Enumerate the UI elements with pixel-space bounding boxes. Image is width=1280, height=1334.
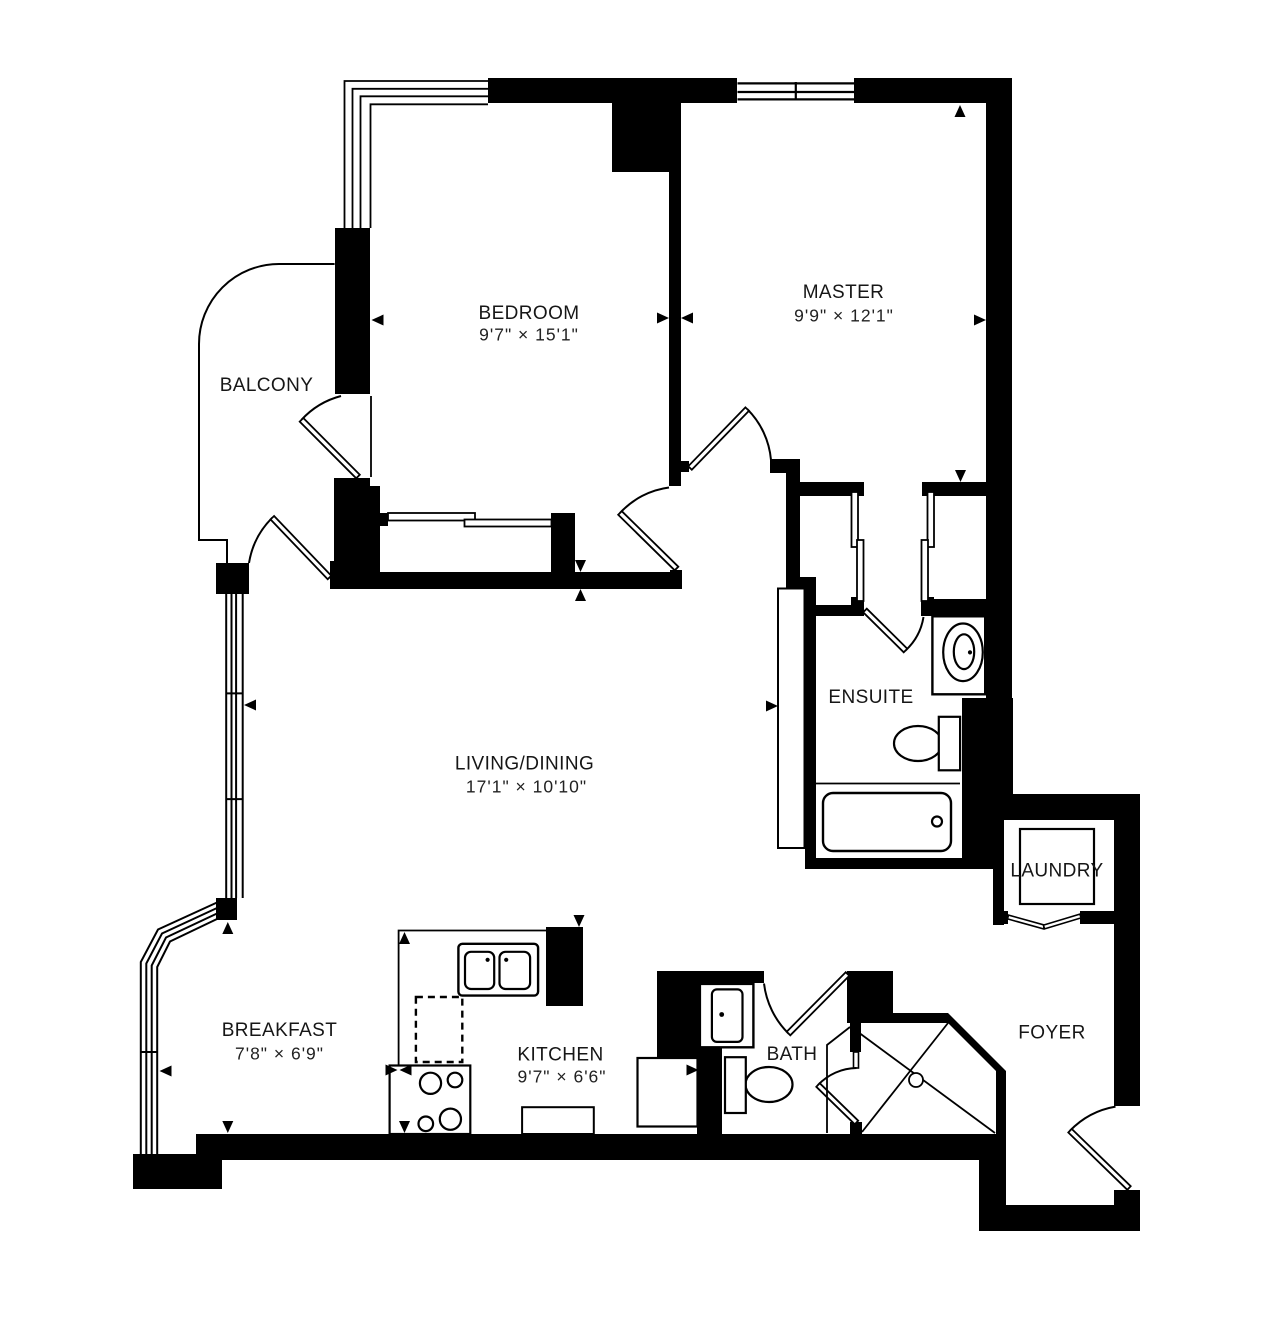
svg-text:9'7" × 6'6": 9'7" × 6'6" [518, 1067, 607, 1087]
svg-text:9'7" × 15'1": 9'7" × 15'1" [479, 325, 579, 345]
svg-text:9'9" × 12'1": 9'9" × 12'1" [794, 306, 894, 326]
svg-text:BALCONY: BALCONY [220, 375, 314, 396]
svg-text:KITCHEN: KITCHEN [517, 1045, 603, 1066]
svg-text:BREAKFAST: BREAKFAST [222, 1020, 338, 1041]
svg-text:LIVING/DINING: LIVING/DINING [455, 754, 594, 775]
svg-text:BATH: BATH [767, 1044, 818, 1065]
svg-text:ENSUITE: ENSUITE [828, 687, 913, 708]
svg-text:LAUNDRY: LAUNDRY [1010, 861, 1103, 882]
svg-text:BEDROOM: BEDROOM [479, 303, 580, 324]
svg-text:17'1" × 10'10": 17'1" × 10'10" [466, 777, 587, 797]
svg-text:7'8" × 6'9": 7'8" × 6'9" [235, 1044, 324, 1064]
svg-text:FOYER: FOYER [1018, 1023, 1085, 1044]
svg-text:MASTER: MASTER [803, 282, 885, 303]
